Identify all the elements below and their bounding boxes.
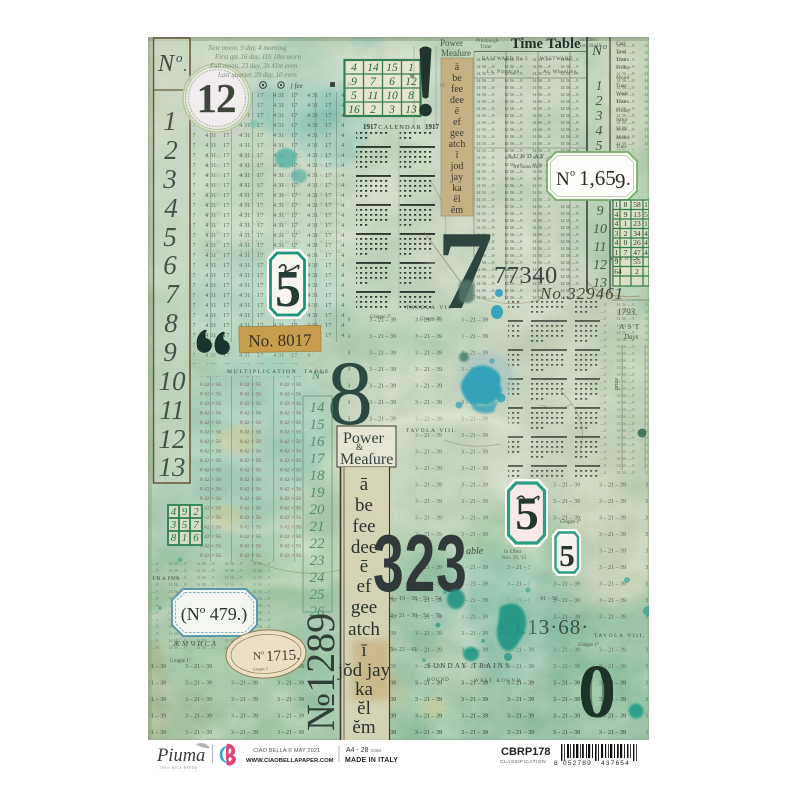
svg-text:5: 5: [559, 538, 575, 573]
svg-text:437654: 437654: [601, 760, 630, 767]
svg-text:Nov. 29, '15: Nov. 29, '15: [502, 556, 527, 561]
svg-text:TAVOLA: TAVOLA: [610, 256, 640, 262]
svg-text:2 – 21 – 30 – 52 – 75: 2 – 21 – 30 – 52 – 75: [390, 613, 441, 619]
svg-text:4: 4: [644, 238, 648, 247]
svg-text:64: 64: [614, 267, 622, 276]
svg-text:ef: ef: [453, 117, 461, 128]
svg-text:23: 23: [633, 219, 641, 228]
svg-text:WESTWARD: WESTWARD: [540, 57, 573, 62]
svg-text:2: 2: [624, 229, 628, 238]
svg-text:Gruppe 2: Gruppe 2: [253, 666, 268, 672]
svg-text:9: 9: [163, 337, 177, 367]
svg-text:1793.: 1793.: [617, 307, 637, 317]
svg-text:2: 2: [370, 104, 376, 116]
svg-text:2: 2: [193, 506, 199, 518]
svg-text:8: 8: [408, 90, 414, 102]
svg-text:20: 20: [310, 502, 326, 518]
svg-text:CIAO BELLA © MAY 2021: CIAO BELLA © MAY 2021: [253, 747, 320, 754]
svg-text:Ar. Wheeling: Ar. Wheeling: [543, 70, 577, 75]
svg-text:Carl: Carl: [616, 41, 626, 47]
svg-text:Full moon, 23 day, 3h 41m even: Full moon, 23 day, 3h 41m even: [209, 63, 298, 70]
svg-text:9: 9: [597, 204, 604, 219]
svg-text:Tues: Tues: [616, 144, 627, 150]
svg-text:ā: ā: [360, 474, 369, 495]
svg-text:6: 6: [163, 250, 177, 280]
svg-text:Satur: Satur: [616, 117, 628, 123]
svg-text:17: 17: [310, 451, 327, 467]
svg-text:23: 23: [310, 553, 325, 569]
svg-text:Gruppe 1º: Gruppe 1º: [578, 642, 599, 648]
svg-text:9: 9: [624, 210, 628, 219]
svg-text:be: be: [452, 73, 462, 84]
svg-text:4 – 19 – 38 – 53 – 74: 4 – 19 – 38 – 53 – 74: [390, 596, 441, 602]
svg-text:Time Table: Time Table: [511, 36, 581, 52]
svg-text:SUNDAY TRAINS: SUNDAY TRAINS: [427, 662, 511, 670]
svg-text:0: 0: [624, 238, 628, 247]
svg-text:o: o: [570, 168, 575, 179]
svg-text:EASTWARD No.3: EASTWARD No.3: [482, 57, 528, 62]
svg-text:11: 11: [160, 395, 185, 425]
svg-text:19: 19: [310, 485, 326, 501]
svg-text:4: 4: [596, 124, 603, 139]
svg-text:9: 9: [351, 76, 357, 88]
svg-text:3: 3: [388, 104, 395, 116]
svg-text:Gruppe 1ª: Gruppe 1ª: [560, 519, 581, 525]
svg-text:be: be: [355, 495, 373, 516]
svg-text:1: 1: [408, 62, 414, 74]
svg-text:5: 5: [515, 488, 539, 540]
svg-text:58: 58: [633, 200, 641, 209]
svg-text:13: 13: [405, 104, 417, 116]
svg-text:AST: AST: [619, 322, 642, 331]
svg-text:Gruppe 2ª: Gruppe 2ª: [370, 314, 391, 320]
svg-text:1: 1: [182, 532, 188, 544]
svg-text:10: 10: [593, 222, 607, 237]
svg-text:6: 6: [193, 532, 199, 544]
svg-text:A4 - 28 GSM: A4 - 28 GSM: [346, 747, 381, 754]
svg-text:THIN RICE PAPER: THIN RICE PAPER: [159, 766, 198, 770]
svg-text:Tues: Tues: [616, 83, 627, 89]
svg-text:Friday: Friday: [616, 108, 631, 114]
svg-text:34: 34: [633, 229, 641, 238]
svg-text:8: 8: [554, 760, 558, 767]
svg-text:ēl: ēl: [453, 194, 460, 205]
svg-text:ka: ka: [355, 679, 374, 700]
svg-text:o: o: [603, 42, 607, 51]
svg-text:14: 14: [310, 400, 326, 416]
svg-text:In Effect: In Effect: [504, 550, 522, 555]
svg-text:5: 5: [351, 90, 357, 102]
svg-text:052789: 052789: [563, 760, 592, 767]
svg-text:5: 5: [182, 519, 188, 531]
svg-text:CBRP178: CBRP178: [501, 746, 551, 758]
svg-text:13: 13: [633, 210, 641, 219]
svg-text:BOUND: BOUND: [427, 678, 450, 683]
svg-text:N: N: [591, 43, 603, 59]
svg-text:4: 4: [171, 506, 177, 518]
svg-text:26: 26: [633, 238, 641, 247]
svg-text:No. 8017: No. 8017: [248, 330, 312, 350]
svg-text:jay: jay: [450, 172, 463, 183]
svg-text:ē: ē: [360, 556, 368, 577]
svg-text:(Nº 479.): (Nº 479.): [181, 604, 248, 625]
svg-text:1715.: 1715.: [266, 647, 301, 665]
svg-text:prize: prize: [614, 378, 620, 390]
svg-text:11: 11: [368, 90, 379, 102]
svg-text:Power: Power: [343, 430, 385, 447]
svg-text:4: 4: [164, 193, 178, 223]
svg-text:4: 4: [615, 219, 619, 228]
svg-text:1: 1: [644, 219, 648, 228]
svg-text:1,65: 1,65: [579, 166, 616, 190]
svg-text:First qtr, 16 day, 11h 10m mor: First qtr, 16 day, 11h 10m morn: [214, 54, 302, 61]
svg-text:0: 0: [578, 650, 616, 734]
svg-text:6: 6: [389, 76, 395, 88]
svg-text:10: 10: [159, 366, 187, 396]
svg-text:21: 21: [310, 519, 325, 535]
svg-text:2: 2: [596, 94, 603, 109]
svg-text:New moon, 9 day, 4 morning: New moon, 9 day, 4 morning: [207, 45, 287, 52]
svg-text:9: 9: [615, 169, 626, 193]
svg-text:7: 7: [165, 279, 180, 309]
svg-text:Meaſure: Meaſure: [441, 48, 471, 58]
svg-text:1: 1: [615, 200, 619, 209]
svg-text:15: 15: [310, 417, 326, 433]
svg-text:Power: Power: [440, 38, 463, 48]
svg-text:o: o: [261, 650, 264, 656]
svg-text:ī: ī: [360, 640, 367, 661]
svg-text:12: 12: [197, 75, 236, 121]
svg-text:1: 1: [596, 79, 603, 94]
svg-text:22: 22: [310, 536, 326, 552]
svg-text:Piuma: Piuma: [156, 746, 205, 766]
svg-text:.: .: [626, 169, 631, 190]
svg-text:ē: ē: [455, 106, 460, 117]
svg-text:CLASSIFICATION: CLASSIFICATION: [500, 759, 546, 765]
svg-text:16: 16: [310, 434, 326, 450]
svg-text:TAVOLA VIII.: TAVOLA VIII.: [594, 633, 646, 639]
svg-text:14: 14: [367, 62, 379, 74]
svg-text:able: able: [466, 546, 484, 557]
svg-text:4: 4: [615, 238, 619, 247]
svg-text:ka: ka: [452, 183, 462, 194]
svg-text:3: 3: [595, 109, 603, 124]
svg-text:ĕm: ĕm: [352, 717, 375, 738]
svg-text:} fee: } fee: [290, 82, 303, 90]
svg-text:dee: dee: [450, 95, 464, 106]
svg-text:N: N: [157, 51, 176, 77]
svg-text:atch: atch: [449, 139, 466, 150]
svg-text:25: 25: [310, 587, 326, 603]
svg-text:12: 12: [405, 76, 417, 88]
svg-text:Mond: Mond: [616, 135, 629, 141]
svg-text:jod: jod: [450, 161, 464, 172]
svg-text:8: 8: [164, 308, 178, 338]
svg-text:Nº: Nº: [311, 368, 324, 382]
svg-text:24: 24: [310, 570, 326, 586]
svg-text:3: 3: [170, 519, 177, 531]
svg-text:16: 16: [348, 104, 360, 116]
svg-text:ī: ī: [455, 150, 459, 161]
svg-text:41 – 56: 41 – 56: [540, 596, 558, 602]
svg-text:gee: gee: [450, 128, 464, 139]
svg-text:2: 2: [635, 267, 639, 276]
svg-text:5: 5: [275, 261, 301, 318]
svg-text:SUN: SUN: [616, 126, 627, 132]
svg-text:o: o: [176, 50, 183, 65]
svg-text:fee: fee: [451, 84, 464, 95]
svg-text:jŏd jay: jŏd jay: [337, 660, 391, 681]
svg-text:7: 7: [193, 519, 199, 531]
svg-text:5: 5: [163, 222, 177, 252]
svg-text:ĕl: ĕl: [357, 698, 371, 719]
svg-text:1917: 1917: [363, 123, 378, 131]
svg-text:WEST BOUND: WEST BOUND: [474, 679, 522, 684]
svg-text:No.329461: No.329461: [539, 284, 624, 303]
svg-text:1: 1: [624, 219, 628, 228]
svg-text:1: 1: [163, 106, 177, 136]
svg-text:Thurs: Thurs: [616, 57, 629, 63]
svg-text:Lv. Pittsb'gh: Lv. Pittsb'gh: [487, 70, 520, 75]
svg-text:Days: Days: [623, 333, 639, 341]
svg-text:WWW.CIAOBELLAPAPER.COM: WWW.CIAOBELLAPAPER.COM: [246, 758, 334, 764]
svg-text:Gruppe 1º: Gruppe 1º: [170, 658, 191, 664]
svg-text:Friday: Friday: [616, 65, 631, 71]
svg-text:Tard: Tard: [616, 49, 626, 55]
svg-text:11: 11: [594, 240, 607, 255]
svg-text:4: 4: [351, 62, 357, 74]
svg-text:3: 3: [615, 229, 619, 238]
svg-text:4: 4: [644, 229, 648, 238]
svg-text:MADE IN ITALY: MADE IN ITALY: [345, 757, 398, 764]
svg-text:TRAINS: TRAINS: [152, 576, 181, 582]
svg-text:1917: 1917: [425, 123, 440, 131]
svg-text:5: 5: [644, 210, 648, 219]
svg-text:5 – 23 – 41: 5 – 23 – 41: [390, 647, 417, 653]
svg-text:Wads: Wads: [616, 91, 628, 97]
svg-text:Gruppe 2ª: Gruppe 2ª: [420, 316, 441, 322]
svg-text:3: 3: [162, 164, 177, 194]
svg-text:12: 12: [159, 424, 186, 454]
svg-text:12: 12: [593, 258, 607, 273]
svg-text:Thurs: Thurs: [616, 99, 629, 105]
svg-text:ЖМЧИСА: ЖМЧИСА: [172, 639, 218, 648]
svg-text:ef: ef: [357, 576, 372, 597]
svg-text:10: 10: [386, 90, 398, 102]
svg-text:4: 4: [615, 210, 619, 219]
svg-text:4: 4: [644, 248, 648, 257]
svg-text:7: 7: [437, 209, 493, 333]
svg-text:TAVOLA VIII.: TAVOLA VIII.: [406, 428, 458, 434]
svg-text:2: 2: [164, 135, 178, 165]
svg-text:N: N: [556, 169, 570, 190]
svg-text:8: 8: [624, 200, 628, 209]
svg-text:TAVOLA VII.: TAVOLA VII.: [406, 305, 454, 311]
svg-text:ā: ā: [455, 62, 460, 73]
svg-text:9: 9: [182, 506, 188, 518]
svg-text:CALENDAR: CALENDAR: [378, 124, 421, 131]
svg-text:15: 15: [386, 62, 398, 74]
svg-text:atch: atch: [348, 619, 380, 640]
svg-text:Time: Time: [480, 44, 492, 50]
svg-text:Last quarter, 29 day, 10 even: Last quarter, 29 day, 10 even: [217, 72, 297, 79]
svg-text:1: 1: [644, 200, 648, 209]
svg-text:Meaſure: Meaſure: [340, 451, 393, 468]
svg-text:18: 18: [310, 468, 326, 484]
svg-text:Mond: Mond: [616, 75, 629, 81]
svg-text:13: 13: [159, 452, 186, 482]
svg-text:.: .: [183, 58, 187, 75]
svg-text:8: 8: [171, 532, 177, 544]
svg-text:№1289: №1289: [298, 613, 343, 731]
